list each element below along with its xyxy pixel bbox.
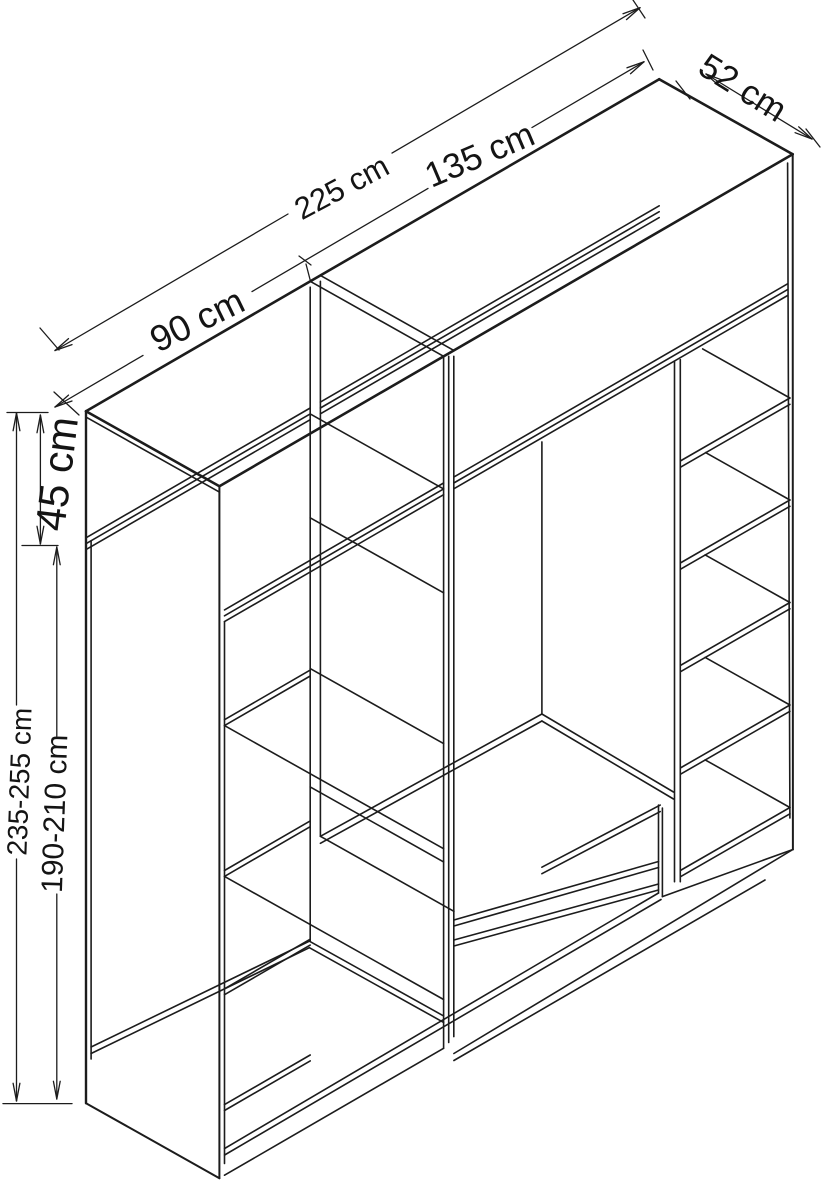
svg-text:190-210 cm: 190-210 cm [36,734,75,893]
svg-text:45 cm: 45 cm [26,414,87,533]
svg-text:235-255 cm: 235-255 cm [1,707,37,856]
svg-text:225 cm: 225 cm [289,148,395,227]
svg-text:52 cm: 52 cm [692,46,793,130]
